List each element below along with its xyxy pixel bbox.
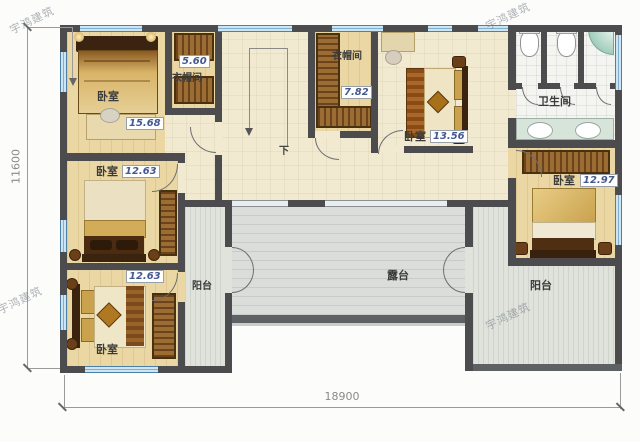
wall [60, 263, 178, 270]
area-badge: 7.82 [341, 86, 372, 99]
wall-lamp-icon [146, 32, 156, 42]
wall [178, 193, 185, 272]
wardrobe [152, 293, 176, 359]
wall [447, 200, 473, 207]
wall [516, 140, 622, 148]
door-opening [215, 122, 222, 155]
wall [308, 25, 315, 138]
window [428, 25, 452, 32]
wall [508, 178, 516, 266]
window [60, 295, 67, 330]
dimension-line-horizontal [62, 407, 622, 408]
stair-guide-line [249, 48, 250, 128]
stair-down-label: 下 [279, 146, 289, 158]
wall [178, 153, 185, 163]
area-badge: 12.63 [126, 270, 164, 283]
vanity-sink [516, 118, 614, 140]
room-label-closet-center: 衣帽间 [332, 51, 362, 63]
room-label-bedroom-mid-left: 卧室 [96, 166, 118, 178]
wall [538, 83, 560, 89]
chair [100, 108, 120, 123]
nightstand [598, 242, 612, 255]
wall [215, 155, 222, 207]
wall [404, 146, 473, 153]
nightstand [452, 56, 466, 68]
room-label-bathroom: 卫生间 [538, 96, 571, 108]
stair-direction-arrow [245, 128, 253, 136]
room-label-bedroom-center: 卧室 [404, 131, 426, 143]
terrace-floor [232, 207, 465, 315]
watermark: 宇鸿建筑 [0, 282, 45, 317]
wall [178, 302, 185, 373]
wall [165, 25, 172, 115]
area-badge: 12.63 [122, 165, 160, 178]
wall [578, 25, 584, 85]
wall [371, 25, 378, 153]
area-badge: 5.60 [179, 55, 210, 68]
wall [508, 118, 516, 148]
bed [72, 284, 146, 348]
room-label-bedroom-bottom-left: 卧室 [96, 344, 118, 356]
wall [574, 83, 596, 89]
dimension-extension [27, 368, 60, 369]
balcony-wall [465, 364, 622, 371]
door-opening [178, 163, 185, 193]
bed [530, 188, 596, 260]
window [332, 25, 383, 32]
dimension-extension [72, 27, 73, 79]
window [218, 25, 292, 32]
wall [371, 146, 378, 153]
window [85, 366, 158, 373]
sliding-glass-door [232, 200, 465, 207]
door-opening [508, 148, 516, 178]
room-label-balcony-right: 阳台 [530, 280, 552, 292]
room-label-closet-top-left: 衣帽间 [172, 73, 202, 85]
dimension-label-width: 18900 [262, 390, 422, 403]
closet-rack [316, 106, 372, 128]
nightstand [66, 338, 78, 350]
dimension-label-height: 11600 [10, 137, 23, 197]
door-opening [465, 247, 473, 293]
watermark: 宇鸿建筑 [7, 2, 57, 37]
dimension-extension [620, 373, 621, 409]
wall [288, 200, 325, 207]
dimension-arrow [69, 78, 77, 86]
nightstand [514, 242, 528, 255]
stair-guide-line [287, 48, 288, 146]
window [615, 35, 622, 90]
nightstand [66, 278, 78, 290]
room-label-balcony-left: 阳台 [192, 281, 212, 293]
area-badge: 15.68 [126, 117, 164, 130]
toilet-icon [557, 31, 576, 57]
terrace-wall [225, 315, 473, 323]
window [60, 52, 67, 92]
bed [406, 66, 468, 138]
wall [215, 25, 222, 122]
dimension-line-vertical [27, 27, 28, 368]
room-label-bedroom-right: 卧室 [553, 175, 575, 187]
door-opening [225, 247, 232, 293]
wardrobe [159, 190, 177, 256]
wall [508, 25, 516, 90]
stair-guide-line [249, 48, 288, 49]
window [615, 195, 622, 245]
floor-plan: 卧室 15.68 5.60 衣帽间 下 衣帽间 7.82 卧室 13.56 卫生… [0, 0, 640, 442]
wall [178, 200, 232, 207]
dimension-extension [64, 375, 65, 409]
nightstand [69, 249, 81, 261]
toilet-icon [520, 31, 539, 57]
wall [165, 108, 222, 115]
wall [308, 131, 315, 138]
door-opening [178, 272, 185, 302]
area-badge: 13.56 [430, 130, 468, 143]
bed [82, 180, 146, 264]
window [80, 25, 142, 32]
wall [508, 258, 622, 266]
area-badge: 12.97 [580, 174, 618, 187]
door-opening [315, 131, 340, 138]
wall [60, 153, 178, 161]
wall-lamp-icon [74, 32, 84, 42]
wall [541, 25, 547, 85]
window [60, 220, 67, 252]
stool [385, 50, 402, 65]
room-label-bedroom-top-left: 卧室 [97, 91, 119, 103]
corner-desk [381, 32, 415, 52]
room-label-terrace: 露台 [387, 270, 409, 282]
